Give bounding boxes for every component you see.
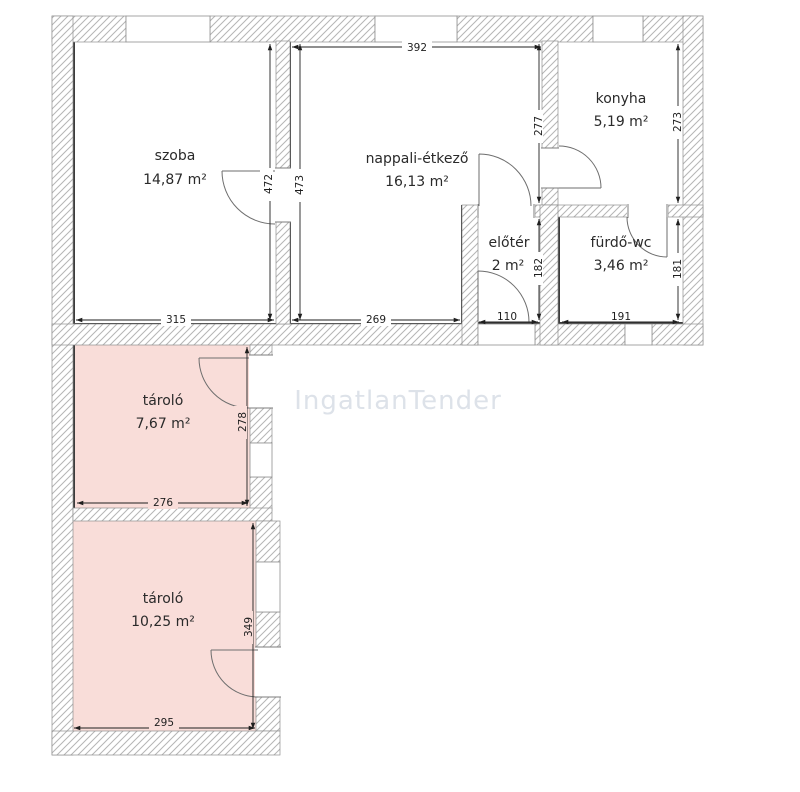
door-gap-szoba — [275, 168, 291, 222]
dim-label-181: 181 — [672, 259, 684, 279]
dim-label-277: 277 — [533, 116, 545, 136]
wall-segment — [256, 521, 280, 562]
opening-tarolo-felso — [250, 443, 272, 477]
room-nappali-name: nappali-étkező — [366, 151, 469, 167]
dim-label-276: 276 — [153, 497, 173, 509]
wall-segment — [52, 16, 73, 755]
door-gap-konyha — [541, 148, 559, 188]
window-furdo — [625, 324, 652, 345]
wall-segment — [542, 188, 558, 205]
dim-label-269: 269 — [366, 314, 386, 326]
dim-label-473: 473 — [294, 175, 306, 195]
floorplan-page: 392 315 269 110 191 276 295 472 473 277 … — [0, 0, 800, 792]
dim-label-295: 295 — [154, 717, 174, 729]
door-gap-eloter — [477, 204, 535, 218]
room-tarolo-also-name: tároló — [143, 591, 184, 607]
window-konyha — [593, 16, 643, 42]
wall-segment — [668, 205, 703, 217]
opening-tarolo-also — [256, 562, 280, 612]
watermark-text: IngatlanTender — [294, 386, 502, 416]
wall-segment — [457, 16, 593, 42]
dim-label-315: 315 — [166, 314, 186, 326]
room-szoba-name: szoba — [155, 148, 196, 164]
wall-segment — [652, 324, 703, 345]
wall-segment — [250, 408, 272, 443]
wall-segment — [52, 731, 280, 755]
room-eloter-name: előtér — [489, 235, 530, 251]
wall-segment — [462, 205, 478, 345]
room-tarolo-felso-name: tároló — [143, 393, 184, 409]
floorplan-svg: 392 315 269 110 191 276 295 472 473 277 … — [0, 0, 800, 792]
dim-label-392: 392 — [407, 42, 427, 54]
wall-segment — [683, 16, 703, 345]
room-konyha-name: konyha — [596, 91, 647, 107]
room-eloter-area: 2 m² — [492, 258, 525, 274]
dim-label-182: 182 — [533, 258, 545, 278]
wall-segment — [250, 477, 272, 511]
entrance-opening — [478, 324, 535, 345]
room-nappali-area: 16,13 m² — [385, 174, 449, 190]
wall-segment — [52, 324, 478, 345]
wall-segment — [210, 16, 375, 42]
room-furdo-name: fürdő-wc — [591, 235, 652, 251]
wall-segment — [250, 345, 272, 355]
room-tarolo-also-area: 10,25 m² — [131, 614, 195, 630]
dim-label-472: 472 — [263, 174, 275, 194]
room-konyha-area: 5,19 m² — [594, 114, 649, 130]
door-gap-furdo — [627, 204, 668, 218]
wall-segment — [73, 508, 272, 521]
dim-label-191: 191 — [611, 311, 631, 323]
door-gap-tarolo-also — [255, 647, 281, 697]
window-szoba — [126, 16, 210, 42]
wall-segment — [276, 41, 290, 168]
door-gap-tarolo-felso — [249, 355, 273, 408]
dim-label-278: 278 — [237, 412, 249, 432]
wall-segment — [256, 697, 280, 731]
room-tarolo-felso-area: 7,67 m² — [136, 416, 191, 432]
dim-label-110: 110 — [497, 311, 517, 323]
room-szoba-area: 14,87 m² — [143, 172, 207, 188]
wall-segment — [276, 222, 290, 324]
dim-label-273: 273 — [672, 112, 684, 132]
window-nappali — [375, 16, 457, 42]
dim-label-349: 349 — [243, 617, 255, 637]
wall-segment — [256, 612, 280, 647]
room-furdo-area: 3,46 m² — [594, 258, 649, 274]
